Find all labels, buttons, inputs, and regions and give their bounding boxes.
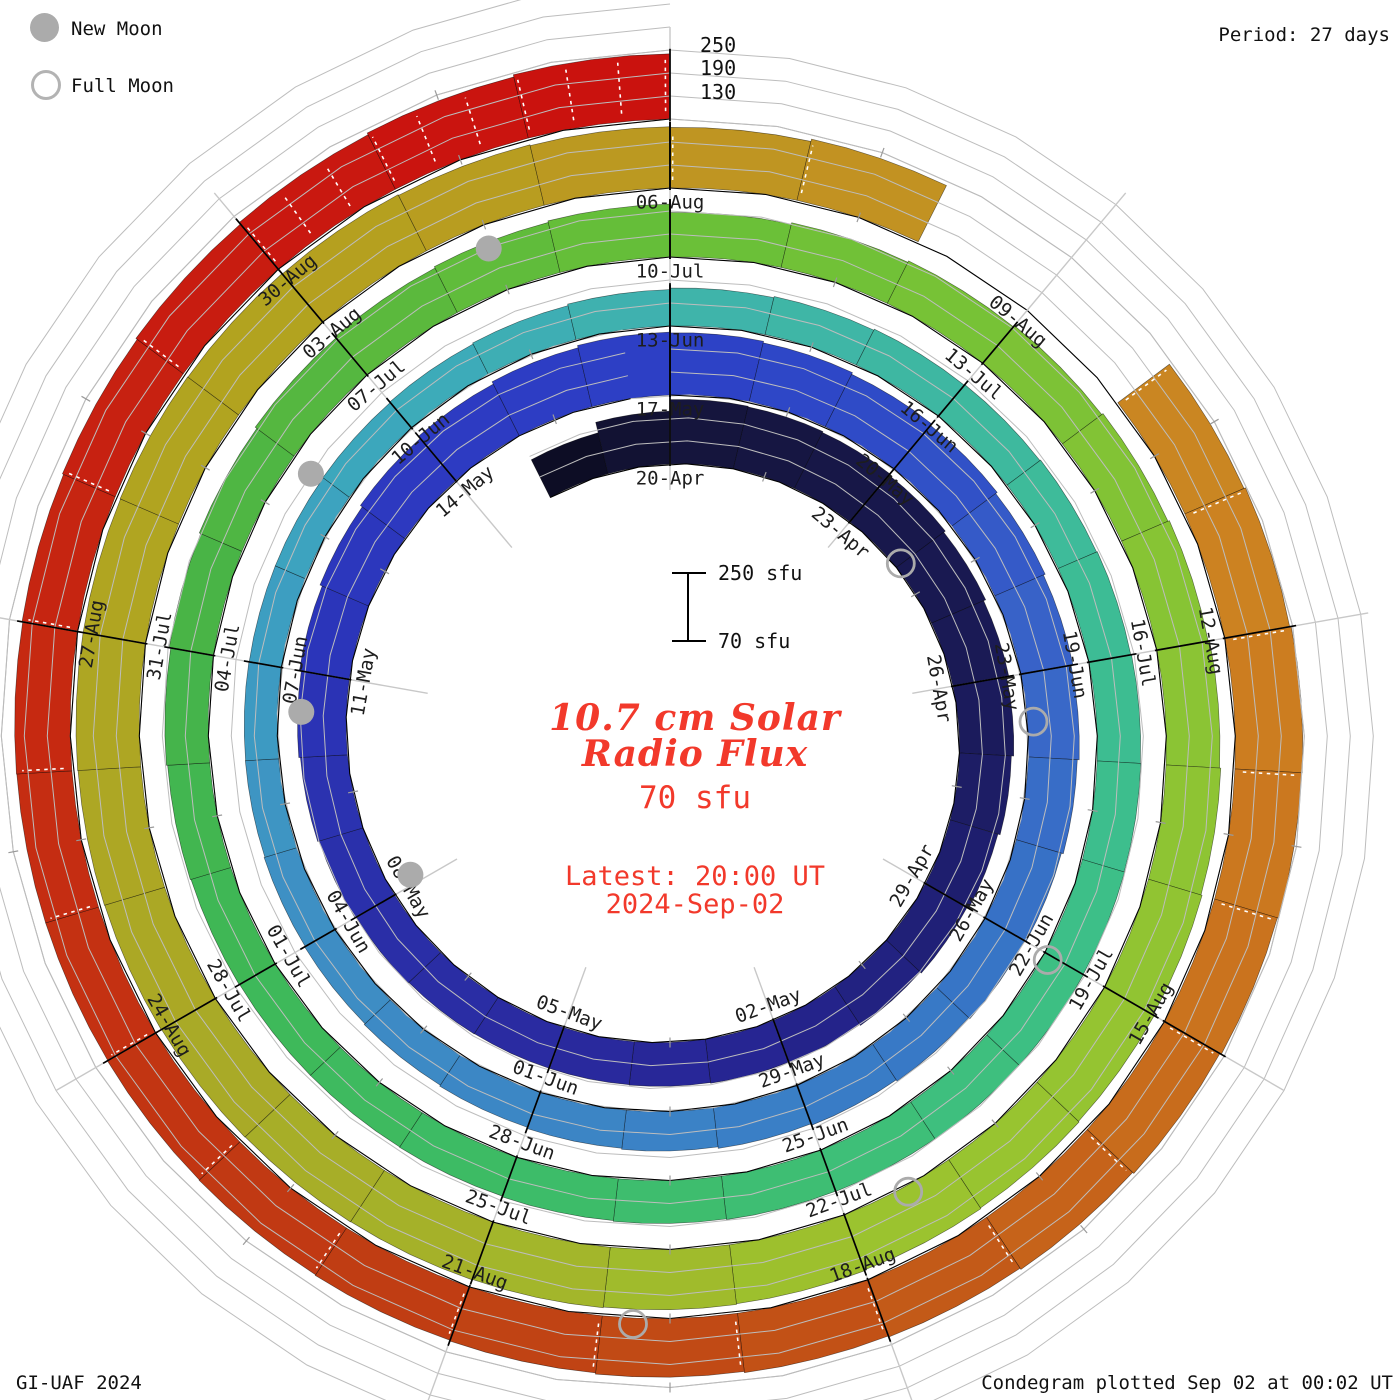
latest-time-label: Latest: 20:00 UT: [345, 861, 1045, 892]
radial-axis-label-190: 190: [700, 56, 736, 80]
chart-subtitle-flux: 70 sfu: [345, 780, 1045, 816]
scalebar-min-label: 70 sfu: [718, 629, 790, 653]
new-moon-marker: [288, 699, 314, 725]
condegram-page: 20-Apr23-Apr26-Apr29-Apr02-May05-May08-M…: [0, 0, 1400, 1400]
legend-new-moon-label: New Moon: [71, 18, 163, 40]
credit-label: GI-UAF 2024: [16, 1372, 142, 1394]
chart-title-line2: Radio Flux: [345, 733, 1045, 775]
date-label: 06-Aug: [636, 192, 705, 214]
date-label: 20-Apr: [636, 468, 705, 490]
radial-axis-label-250: 250: [700, 33, 736, 57]
plotted-timestamp-label: Condegram plotted Sep 02 at 00:02 UT: [981, 1372, 1393, 1394]
new-moon-marker: [298, 461, 324, 487]
period-label: Period: 27 days: [1218, 24, 1390, 46]
date-label: 10-Jul: [636, 261, 705, 283]
legend-full-moon-label: Full Moon: [71, 75, 174, 97]
date-label: 17-May: [636, 399, 705, 421]
scalebar-max-label: 250 sfu: [718, 561, 802, 585]
radial-axis-label-130: 130: [700, 80, 736, 104]
new-moon-icon: [30, 13, 59, 42]
full-moon-icon: [31, 70, 61, 100]
latest-date-label: 2024-Sep-02: [345, 889, 1045, 920]
date-label: 13-Jun: [636, 330, 705, 352]
scale-bar: [672, 573, 706, 641]
new-moon-marker: [476, 236, 502, 262]
